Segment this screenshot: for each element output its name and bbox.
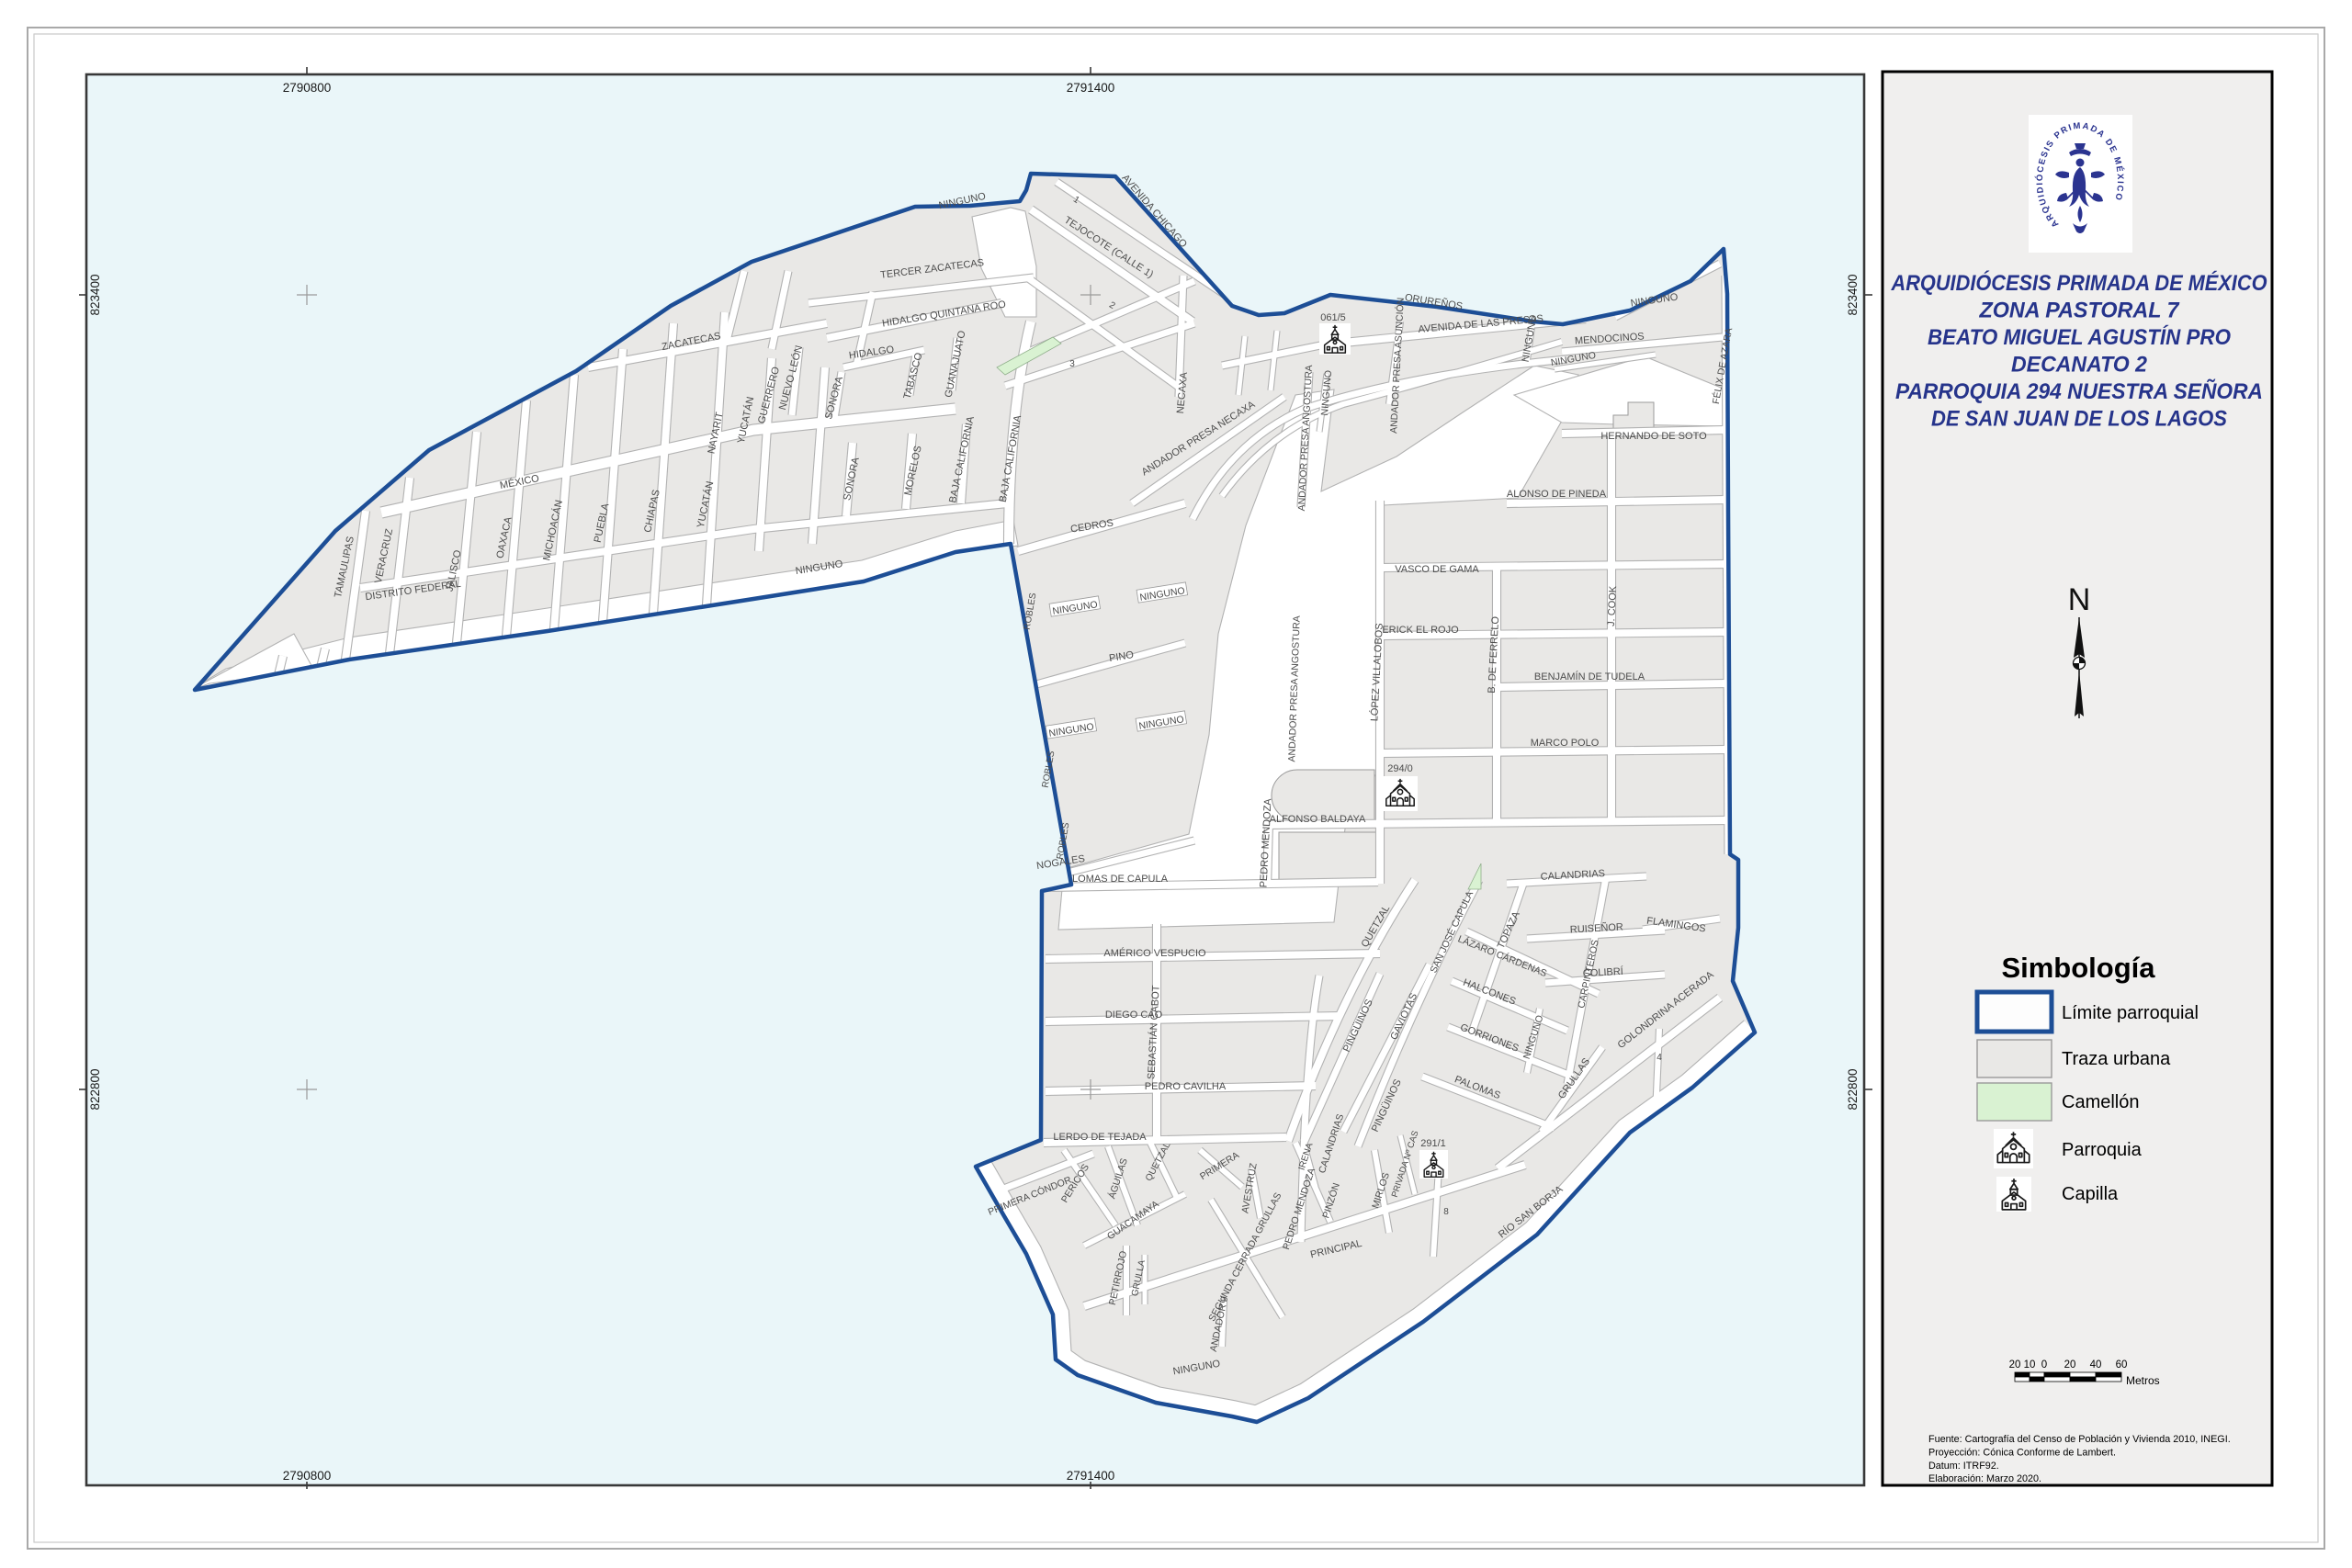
svg-text:PEDRO CAVILHA: PEDRO CAVILHA	[1145, 1081, 1227, 1092]
svg-text:10: 10	[2024, 1359, 2036, 1371]
svg-text:MARCO POLO: MARCO POLO	[1531, 738, 1600, 749]
svg-text:Proyección: Cónica Conforme de: Proyección: Cónica Conforme de Lambert.	[1928, 1447, 2116, 1458]
svg-text:8: 8	[1443, 1207, 1449, 1217]
svg-text:AMÉRICO VESPUCIO: AMÉRICO VESPUCIO	[1103, 947, 1206, 959]
svg-text:LOMAS DE CAPULA: LOMAS DE CAPULA	[1072, 874, 1169, 885]
svg-text:4: 4	[1657, 1053, 1662, 1063]
svg-text:823400: 823400	[1846, 274, 1860, 315]
svg-text:Elaboración: Marzo 2020.: Elaboración: Marzo 2020.	[1928, 1473, 2041, 1484]
svg-text:823400: 823400	[88, 274, 102, 315]
svg-text:J. COOK: J. COOK	[1606, 585, 1619, 626]
svg-text:3: 3	[1069, 359, 1075, 369]
svg-text:20: 20	[2009, 1359, 2021, 1371]
svg-text:ZONA PASTORAL 7: ZONA PASTORAL 7	[1979, 299, 2180, 323]
svg-text:291/1: 291/1	[1420, 1138, 1446, 1149]
svg-text:Metros: Metros	[2126, 1374, 2160, 1387]
svg-text:822800: 822800	[1846, 1068, 1860, 1110]
svg-text:2791400: 2791400	[1067, 81, 1115, 95]
svg-text:ALFONSO BALDAYA: ALFONSO BALDAYA	[1270, 814, 1366, 825]
svg-text:DECANATO 2: DECANATO 2	[2011, 353, 2147, 378]
svg-text:0: 0	[2041, 1359, 2047, 1371]
svg-text:LERDO DE TEJADA: LERDO DE TEJADA	[1053, 1132, 1147, 1143]
svg-text:822800: 822800	[88, 1068, 102, 1110]
svg-text:VASCO DE GAMA: VASCO DE GAMA	[1395, 564, 1479, 575]
svg-text:294/0: 294/0	[1387, 763, 1413, 774]
svg-text:Datum: ITRF92.: Datum: ITRF92.	[1928, 1461, 1999, 1472]
svg-text:2790800: 2790800	[283, 81, 332, 95]
svg-text:2791400: 2791400	[1067, 1469, 1115, 1483]
svg-text:BENJAMÍN DE TUDELA: BENJAMÍN DE TUDELA	[1534, 671, 1645, 682]
svg-text:HERNANDO DE SOTO: HERNANDO DE SOTO	[1600, 431, 1707, 442]
svg-text:40: 40	[2090, 1359, 2102, 1371]
svg-text:60: 60	[2116, 1359, 2128, 1371]
svg-text:Traza urbana: Traza urbana	[2062, 1049, 2171, 1069]
svg-text:Simbología: Simbología	[2001, 952, 2155, 984]
svg-text:20: 20	[2064, 1359, 2076, 1371]
svg-text:ARQUIDIÓCESIS PRIMADA DE MÉXIC: ARQUIDIÓCESIS PRIMADA DE MÉXICO	[1891, 270, 2267, 296]
svg-text:Camellón: Camellón	[2062, 1092, 2139, 1112]
svg-text:Parroquia: Parroquia	[2062, 1140, 2143, 1160]
svg-text:N: N	[2068, 582, 2091, 617]
svg-text:ALONSO DE PINEDA: ALONSO DE PINEDA	[1507, 489, 1607, 500]
svg-text:BEATO MIGUEL AGUSTÍN PRO: BEATO MIGUEL AGUSTÍN PRO	[1928, 324, 2231, 350]
svg-text:Capilla: Capilla	[2062, 1184, 2119, 1204]
svg-text:DE SAN JUAN DE LOS LAGOS: DE SAN JUAN DE LOS LAGOS	[1931, 407, 2228, 432]
svg-text:PARROQUIA 294 NUESTRA SEÑORA: PARROQUIA 294 NUESTRA SEÑORA	[1895, 378, 2263, 404]
svg-text:Límite parroquial: Límite parroquial	[2062, 1003, 2199, 1023]
svg-text:ERICK EL ROJO: ERICK EL ROJO	[1382, 625, 1459, 636]
svg-text:2790800: 2790800	[283, 1469, 332, 1483]
svg-text:Fuente: Cartografía del Censo: Fuente: Cartografía del Censo de Poblaci…	[1928, 1434, 2231, 1445]
svg-text:061/5: 061/5	[1320, 312, 1346, 323]
